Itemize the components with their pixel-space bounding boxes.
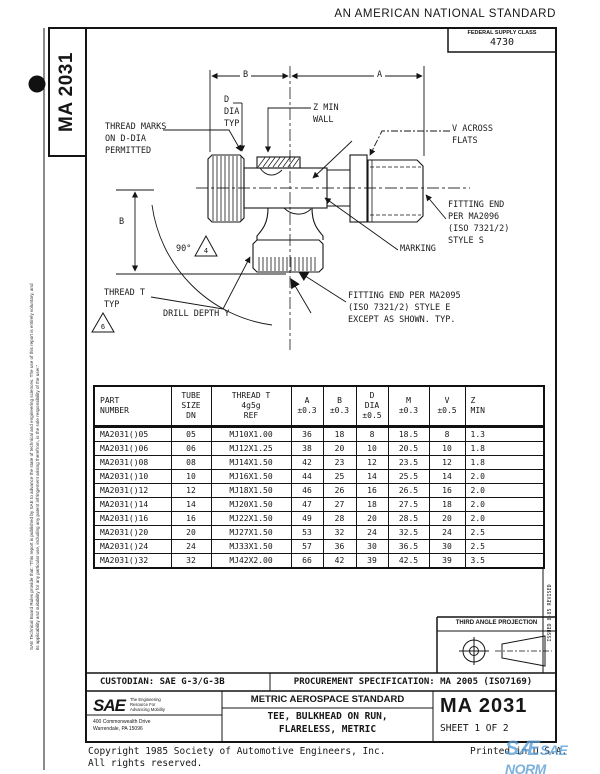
table-cell: MA2031()32	[94, 554, 171, 569]
sae-norm-watermark: SÆSAE NORM INTERNATIONAL	[505, 737, 600, 774]
table-cell: MA2031()10	[94, 470, 171, 484]
note-drill-depth: DRILL DEPTH Y	[163, 308, 230, 320]
table-cell: 12	[356, 456, 388, 470]
table-cell: 26.5	[388, 484, 429, 498]
revision-note: ISSUED 8-85 REVISED	[547, 584, 553, 641]
table-cell: 05	[171, 427, 211, 442]
table-cell: MJ10X1.00	[211, 427, 291, 442]
dimension-table: PART NUMBER TUBE SIZE DN THREAD T 4g5g R…	[93, 385, 545, 569]
table-row: MA2031()2020MJ27X1.5053322432.5242.5	[94, 526, 544, 540]
table-cell: 20	[171, 526, 211, 540]
document-title: TEE, BULKHEAD ON RUN, FLARELESS, METRIC	[222, 711, 433, 736]
table-cell: 10	[171, 470, 211, 484]
note-z-min-wall: Z MIN WALL	[313, 102, 339, 126]
watermark-logo: SÆ	[505, 737, 540, 760]
table-cell: 2.0	[465, 512, 544, 526]
table-row: MA2031()0808MJ14X1.5042231223.5121.8	[94, 456, 544, 470]
table-cell: 10	[356, 442, 388, 456]
col-m: M ±0.3	[388, 386, 429, 427]
table-row: MA2031()1616MJ22X1.5049282028.5202.0	[94, 512, 544, 526]
table-cell: 32	[323, 526, 356, 540]
table-cell: MA2031()14	[94, 498, 171, 512]
table-cell: 08	[171, 456, 211, 470]
table-cell: MA2031()24	[94, 540, 171, 554]
table-cell: 24	[171, 540, 211, 554]
table-cell: 24	[429, 526, 465, 540]
punch-hole	[29, 76, 46, 93]
federal-supply-class-label: FEDERAL SUPPLY CLASS	[448, 30, 556, 36]
table-cell: 2.0	[465, 484, 544, 498]
table-cell: MJ14X1.50	[211, 456, 291, 470]
table-cell: 2.5	[465, 540, 544, 554]
table-cell: 24	[356, 526, 388, 540]
col-tube-size: TUBE SIZE DN	[171, 386, 211, 427]
tee-fitting-outline	[208, 155, 423, 272]
table-cell: 14	[429, 470, 465, 484]
table-cell: 16	[356, 484, 388, 498]
note-thread-t: THREAD T TYP	[104, 287, 145, 311]
standard-sheet: 4 6 AN AMERICAN NATIONAL STANDARD FEDERA…	[0, 0, 600, 774]
table-cell: 18	[356, 498, 388, 512]
table-row: MA2031()1212MJ18X1.5046261626.5162.0	[94, 484, 544, 498]
table-cell: 39	[356, 554, 388, 569]
table-cell: 47	[291, 498, 323, 512]
table-cell: MA2031()08	[94, 456, 171, 470]
table-cell: MA2031()05	[94, 427, 171, 442]
table-cell: MJ27X1.50	[211, 526, 291, 540]
table-cell: 23	[323, 456, 356, 470]
sae-logo: SAE	[93, 696, 125, 716]
table-cell: 36	[291, 427, 323, 442]
table-cell: 42	[291, 456, 323, 470]
doc-number-vertical: MA 2031	[56, 52, 78, 132]
table-cell: 39	[429, 554, 465, 569]
note-thread-marks: THREAD MARKS ON D-DIA PERMITTED	[105, 121, 166, 157]
third-angle-projection-label: THIRD ANGLE PROJECTION	[437, 620, 556, 626]
table-cell: 18.5	[388, 427, 429, 442]
table-row: MA2031()0505MJ10X1.003618818.581.3	[94, 427, 544, 442]
table-cell: 2.0	[465, 498, 544, 512]
col-b: B ±0.3	[323, 386, 356, 427]
col-thread: THREAD T 4g5g REF	[211, 386, 291, 427]
table-cell: 32	[171, 554, 211, 569]
table-cell: 14	[356, 470, 388, 484]
dimension-lines	[116, 66, 424, 325]
table-cell: 20.5	[388, 442, 429, 456]
table-cell: MJ42X2.00	[211, 554, 291, 569]
table-cell: 8	[429, 427, 465, 442]
table-cell: 42.5	[388, 554, 429, 569]
table-cell: MJ33X1.50	[211, 540, 291, 554]
table-cell: MJ18X1.50	[211, 484, 291, 498]
col-v: V ±0.5	[429, 386, 465, 427]
note-d-dia: D DIA TYP	[224, 94, 239, 130]
table-cell: 18	[429, 498, 465, 512]
flag-note-4: 4	[204, 247, 208, 255]
table-cell: 3.5	[465, 554, 544, 569]
table-cell: 25	[323, 470, 356, 484]
projection-symbols	[459, 636, 552, 666]
table-cell: 66	[291, 554, 323, 569]
dim-label-b-left: B	[119, 216, 124, 228]
table-cell: 20	[323, 442, 356, 456]
table-cell: 16	[429, 484, 465, 498]
sheet-number: SHEET 1 OF 2	[440, 723, 509, 734]
table-cell: MJ12X1.25	[211, 442, 291, 456]
table-row: MA2031()1010MJ16X1.5044251425.5142.0	[94, 470, 544, 484]
procurement-specification: PROCUREMENT SPECIFICATION: MA 2005 (ISO7…	[272, 677, 554, 687]
table-cell: 46	[291, 484, 323, 498]
table-cell: 42	[323, 554, 356, 569]
table-cell: MA2031()12	[94, 484, 171, 498]
table-cell: 26	[323, 484, 356, 498]
note-marking: MARKING	[400, 243, 436, 255]
table-header-row: PART NUMBER TUBE SIZE DN THREAD T 4g5g R…	[94, 386, 544, 427]
table-cell: 53	[291, 526, 323, 540]
table-cell: 20	[356, 512, 388, 526]
table-row: MA2031()0606MJ12X1.2538201020.5101.8	[94, 442, 544, 456]
table-cell: 30	[429, 540, 465, 554]
table-cell: 36.5	[388, 540, 429, 554]
note-v-across-flats: V ACROSS FLATS	[452, 123, 493, 147]
table-cell: MA2031()20	[94, 526, 171, 540]
national-standard-banner: AN AMERICAN NATIONAL STANDARD	[334, 8, 556, 20]
table-cell: 10	[429, 442, 465, 456]
note-fitting-end-style-s: FITTING END PER MA2096 (ISO 7321/2) STYL…	[448, 199, 509, 247]
table-cell: MJ20X1.50	[211, 498, 291, 512]
table-row: MA2031()1414MJ20X1.5047271827.5182.0	[94, 498, 544, 512]
col-part-number: PART NUMBER	[94, 386, 171, 427]
table-cell: 2.5	[465, 526, 544, 540]
table-cell: 1.8	[465, 456, 544, 470]
table-row: MA2031()3232MJ42X2.0066423942.5393.5	[94, 554, 544, 569]
sae-tagline: The Engineering Resource For Advancing M…	[130, 697, 165, 712]
dim-label-b-top: B	[240, 70, 251, 80]
table-row: MA2031()2424MJ33X1.5057363036.5302.5	[94, 540, 544, 554]
table-cell: 36	[323, 540, 356, 554]
table-cell: 23.5	[388, 456, 429, 470]
table-cell: 28	[323, 512, 356, 526]
federal-supply-class-value: 4730	[448, 37, 556, 48]
table-cell: 8	[356, 427, 388, 442]
table-cell: 44	[291, 470, 323, 484]
table-cell: 27.5	[388, 498, 429, 512]
table-cell: 1.3	[465, 427, 544, 442]
table-cell: 2.0	[465, 470, 544, 484]
table-cell: 18	[323, 427, 356, 442]
table-cell: 12	[171, 484, 211, 498]
side-disclaimer: SAE Technical Board Rules provide that: …	[29, 130, 41, 650]
table-cell: 57	[291, 540, 323, 554]
custodian: CUSTODIAN: SAE G-3/G-3B	[100, 677, 225, 687]
table-cell: 28.5	[388, 512, 429, 526]
note-90-degrees: 90°	[176, 243, 191, 255]
col-z: Z MIN	[465, 386, 544, 427]
table-cell: 16	[171, 512, 211, 526]
col-d: D DIA ±0.5	[356, 386, 388, 427]
table-cell: 1.8	[465, 442, 544, 456]
table-cell: MA2031()16	[94, 512, 171, 526]
table-cell: 38	[291, 442, 323, 456]
dim-label-a: A	[374, 70, 385, 80]
note-fitting-end-style-e: FITTING END PER MA2095 (ISO 7321/2) STYL…	[348, 290, 461, 326]
table-cell: 27	[323, 498, 356, 512]
sae-address: 400 Commonwealth Drive Warrendale, PA 15…	[93, 719, 151, 733]
table-cell: 20	[429, 512, 465, 526]
table-cell: 06	[171, 442, 211, 456]
table-cell: 14	[171, 498, 211, 512]
standard-type: METRIC AEROSPACE STANDARD	[222, 694, 433, 705]
col-a: A ±0.3	[291, 386, 323, 427]
flag-note-6: 6	[101, 323, 105, 331]
doc-number: MA 2031	[440, 695, 527, 718]
table-cell: MJ16X1.50	[211, 470, 291, 484]
table-cell: 25.5	[388, 470, 429, 484]
table-cell: 30	[356, 540, 388, 554]
side-disclaimer-line2: its applicability and suitability for an…	[35, 130, 41, 650]
table-cell: MJ22X1.50	[211, 512, 291, 526]
table-cell: MA2031()06	[94, 442, 171, 456]
table-cell: 49	[291, 512, 323, 526]
table-cell: 32.5	[388, 526, 429, 540]
copyright-notice: Copyright 1985 Society of Automotive Eng…	[88, 746, 385, 770]
table-body: MA2031()0505MJ10X1.003618818.581.3MA2031…	[94, 427, 544, 569]
table-cell: 12	[429, 456, 465, 470]
